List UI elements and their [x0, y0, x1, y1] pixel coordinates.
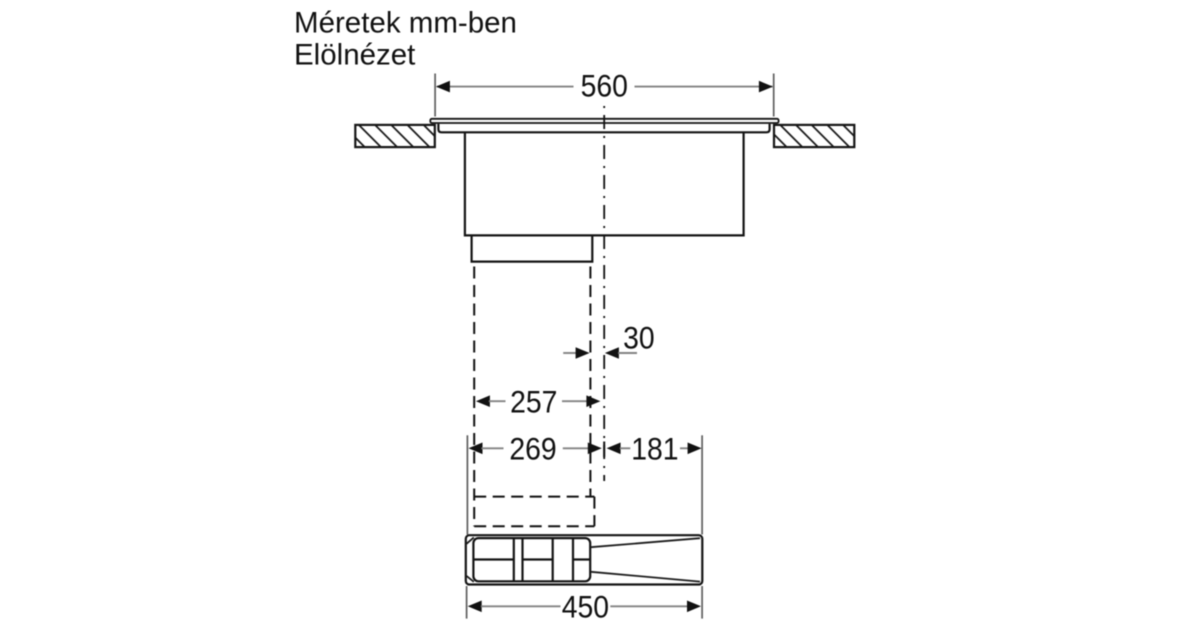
svg-text:450: 450 — [562, 590, 609, 625]
svg-text:560: 560 — [581, 69, 628, 104]
svg-text:Méretek mm-ben: Méretek mm-ben — [294, 7, 517, 40]
svg-text:Elölnézet: Elölnézet — [294, 39, 415, 72]
svg-text:30: 30 — [623, 321, 655, 356]
svg-text:181: 181 — [631, 432, 678, 467]
svg-text:257: 257 — [510, 385, 557, 420]
svg-text:269: 269 — [509, 432, 556, 467]
